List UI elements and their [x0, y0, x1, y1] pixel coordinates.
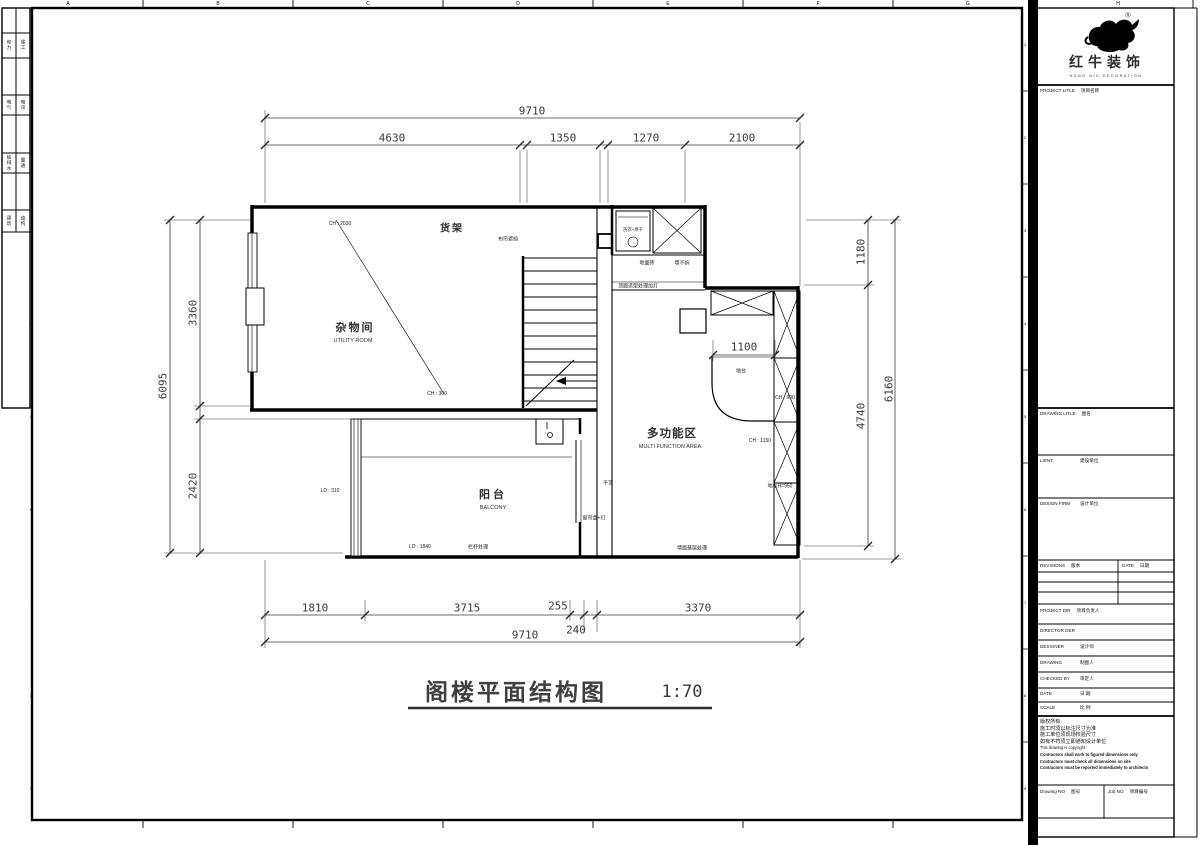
dim-bottom-seg: 3370 — [685, 602, 712, 615]
field-client: LIENT建设单位 — [1040, 458, 1098, 464]
stamp-label: 电讯 — [20, 99, 26, 110]
anno-ch900: CH : 900 — [775, 395, 795, 401]
field-scale: SCALE比 例 — [1040, 705, 1090, 711]
field-job-no: Job NO项目编号 — [1108, 789, 1148, 795]
grid-letter: F — [816, 1, 819, 7]
copyright-notes: 版权所有 施工时须以标注尺寸为准 施工单位须现场校验尺寸 如有不符须立即通知设计… — [1040, 719, 1170, 772]
grid-number: 9 — [30, 787, 32, 791]
grid-letter: D — [516, 1, 520, 7]
dim-bottom-seg: 255 — [548, 600, 568, 613]
dim-bottom-seg: 3715 — [454, 602, 481, 615]
grid-number: 2 — [30, 136, 32, 140]
dim-top-seg: 4630 — [379, 132, 406, 145]
dim-left-seg: 3360 — [187, 300, 200, 327]
grid-number: 3 — [30, 229, 32, 233]
grid-number: 5 — [1024, 415, 1026, 419]
stamp-label: 竣工 — [20, 39, 26, 50]
cad-sheet: A B C D E F G H 1 2 3 4 5 6 7 8 9 1 2 3 … — [0, 0, 1200, 845]
linework-layer — [0, 0, 1200, 845]
field-drawn-by: DRAWING制图人 — [1040, 660, 1094, 666]
grid-letter: A — [66, 1, 69, 7]
title-block-lines — [1036, 8, 1174, 837]
grid-number: 6 — [30, 508, 32, 512]
grid-number: 4 — [1024, 322, 1026, 326]
dim-top-seg: 2100 — [729, 132, 756, 145]
stamp-label: 建筑 — [6, 215, 12, 226]
dim-inner-1100: 1100 — [731, 341, 758, 354]
stamp-label: 结构 — [20, 215, 26, 226]
window-symbols — [246, 233, 361, 556]
water-heater-symbol — [536, 419, 563, 444]
anno-washer: 洗衣+烘干 — [623, 227, 643, 233]
drawing-scale: 1:70 — [662, 682, 703, 702]
stamp-label: 电气 — [6, 99, 12, 110]
anno-curtain: 布帘遮挡 — [498, 236, 518, 243]
grid-letter: C — [366, 1, 370, 7]
anno-platform: 地台 — [736, 368, 746, 375]
dim-left-total: 6095 — [157, 373, 170, 400]
drawing-title: 阁楼平面结构图 — [425, 673, 607, 707]
room-utility: 杂物间 — [336, 319, 375, 335]
grid-letter: E — [666, 1, 669, 7]
wardrobe-side-x-boxes — [774, 291, 800, 545]
anno-shelf: 货架 — [440, 220, 464, 235]
field-design-firm: DESIGN FIRM设计单位 — [1040, 501, 1098, 507]
dim-top-seg: 1270 — [633, 132, 660, 145]
grid-number: 6 — [1024, 508, 1026, 512]
field-director: DIRECTOR DER — [1040, 628, 1075, 633]
plan-interior-lines — [336, 207, 774, 557]
field-designer: DESIGNER设计师 — [1040, 644, 1094, 650]
field-project-director: PROJECT DIR项目负责人 — [1040, 608, 1100, 614]
grid-letter: G — [966, 1, 970, 7]
grid-number: 1 — [30, 43, 32, 47]
grid-number: 7 — [1024, 601, 1026, 605]
anno-ld310: LD : 310 — [321, 488, 340, 494]
registered-mark-icon: ® — [1125, 13, 1130, 20]
grid-letter: H — [1116, 1, 1120, 7]
field-checked-by: CHECKED BY审定人 — [1040, 676, 1094, 682]
field-drawing-title: DRAWING LITLE图名 — [1040, 411, 1091, 417]
grid-number: 4 — [30, 322, 32, 326]
anno-flat-ceiling: 平顶 — [603, 480, 613, 487]
room-balcony: 阳台 — [479, 486, 507, 502]
logo-subtitle: HONG NIU DECORATION — [1069, 74, 1142, 78]
anno-floor-tile: 地面砖 — [639, 260, 654, 267]
grid-number: 3 — [1024, 229, 1026, 233]
stair-direction-arrow — [556, 377, 566, 385]
grid-number: 8 — [1024, 694, 1026, 698]
dim-right-total: 6160 — [883, 376, 896, 403]
dim-bottom-seg: 1810 — [302, 602, 329, 615]
dim-top-total: 9710 — [519, 105, 546, 118]
room-balcony-en: BALCONY — [480, 505, 506, 511]
room-multi-en: MULTI FUNCTION AREA — [639, 444, 701, 450]
grid-number: 1 — [1024, 43, 1026, 47]
dim-right-seg: 4740 — [855, 403, 868, 430]
anno-railing: 栏杆处理 — [468, 544, 488, 551]
grid-number: 2 — [1024, 136, 1026, 140]
field-revision-date: DATE日期 — [1122, 563, 1149, 569]
room-multi: 多功能区 — [647, 425, 697, 441]
stamp-label: 动力 — [6, 39, 12, 50]
anno-cabinet: 地柜H=950 — [768, 483, 793, 490]
room-utility-en: UTILITY ROOM — [333, 338, 372, 344]
grid-number: 9 — [1024, 787, 1026, 791]
dim-bottom-total: 9710 — [512, 629, 539, 642]
sheet-frame — [32, 0, 1197, 845]
field-date: DATE日 期 — [1040, 691, 1090, 697]
grid-number: 7 — [30, 601, 32, 605]
dim-right-seg: 1180 — [855, 239, 868, 266]
dim-left-seg: 2420 — [187, 473, 200, 500]
field-drawing-no: Drawing NO图号 — [1040, 789, 1080, 795]
dim-top-seg: 1350 — [550, 132, 577, 145]
anno-wall-base: 墙面基层处理 — [677, 545, 707, 552]
logo-bull-icon — [1085, 19, 1139, 52]
anno-ch2030: CH : 2030 — [329, 221, 352, 227]
field-revisions: REVISIONS版本 — [1040, 563, 1080, 569]
stairs — [523, 258, 597, 406]
grid-letter: B — [216, 1, 219, 7]
anno-ld1840: LD : 1840 — [409, 544, 431, 550]
stamp-strip — [2, 8, 30, 408]
dim-bottom-stagger: 240 — [566, 624, 586, 637]
logo-name: 红牛装饰 — [1069, 52, 1145, 72]
anno-ch300: CH : 300 — [427, 391, 447, 397]
dimension-lines — [164, 110, 901, 648]
stamp-label: 给排水 — [6, 155, 12, 172]
anno-ch1150: CH : 1150 — [749, 438, 771, 444]
anno-curtain-box: 窗帘盒+灯 — [583, 515, 606, 522]
stamp-label: 暖通 — [20, 157, 26, 168]
field-project-title: PROJECT LITLE项目名称 — [1040, 88, 1099, 94]
anno-ceiling: 顶面造型处理加灯 — [618, 283, 658, 290]
grid-number: 5 — [30, 415, 32, 419]
grid-number: 8 — [30, 694, 32, 698]
anno-wall-keep: 墙不拆 — [674, 260, 689, 267]
